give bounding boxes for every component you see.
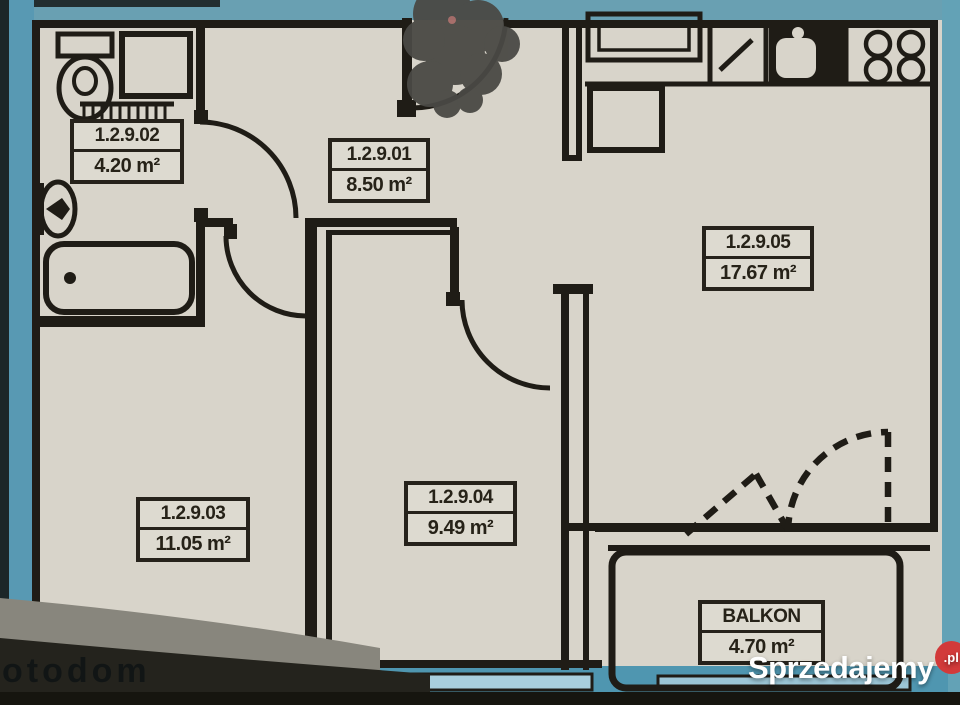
room-area: 8.50 m² (332, 171, 426, 199)
room-label-1-2-9-04: 1.2.9.04 9.49 m² (404, 481, 517, 546)
otodom-watermark: otodom (2, 652, 151, 691)
sprzedajemy-watermark: Sprzedajemy.pl (748, 650, 960, 686)
room-label-1-2-9-02: 1.2.9.02 4.20 m² (70, 119, 184, 184)
room-area: 4.20 m² (74, 152, 180, 180)
room-label-1-2-9-05: 1.2.9.05 17.67 m² (702, 226, 814, 291)
room-number: 1.2.9.04 (408, 485, 513, 514)
room-area: 11.05 m² (140, 530, 246, 558)
room-number: 1.2.9.01 (332, 142, 426, 171)
brand-tld-badge: .pl (935, 641, 960, 674)
room-label-1-2-9-03: 1.2.9.03 11.05 m² (136, 497, 250, 562)
room-area: 17.67 m² (706, 259, 810, 287)
brand-text: Sprzedajemy (748, 650, 934, 685)
room-number: 1.2.9.03 (140, 501, 246, 530)
room-number: 1.2.9.05 (706, 230, 810, 259)
floorplan-photo: 1.2.9.02 4.20 m² 1.2.9.01 8.50 m² 1.2.9.… (0, 0, 960, 705)
room-number: 1.2.9.02 (74, 123, 180, 152)
room-number: BALKON (702, 604, 821, 633)
drain-symbol (64, 272, 76, 284)
room-label-1-2-9-01: 1.2.9.01 8.50 m² (328, 138, 430, 203)
room-area: 9.49 m² (408, 514, 513, 542)
